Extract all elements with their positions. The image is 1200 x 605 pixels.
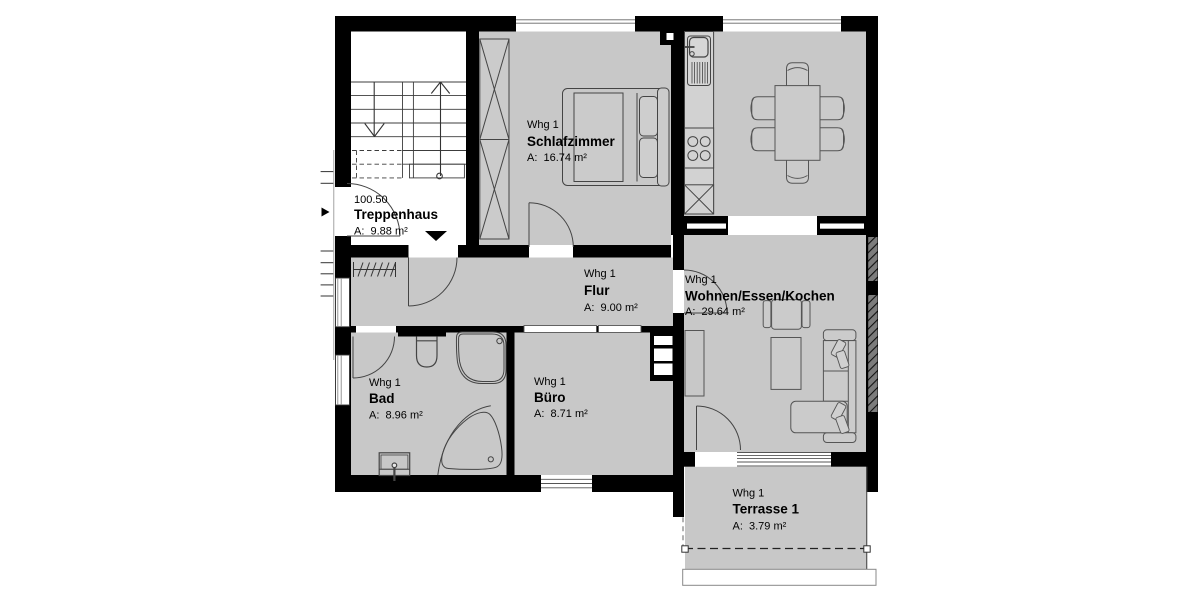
svg-text:Whg 1: Whg 1 <box>685 274 717 286</box>
svg-text:A: 3.79 m²: A: 3.79 m² <box>733 521 787 533</box>
svg-text:100.50: 100.50 <box>354 194 388 206</box>
svg-text:A: 9.00 m²: A: 9.00 m² <box>584 302 638 314</box>
svg-text:Bad: Bad <box>369 391 395 406</box>
svg-text:A: 8.96 m²: A: 8.96 m² <box>369 410 423 422</box>
svg-text:Whg 1: Whg 1 <box>584 268 616 280</box>
svg-text:A: 29.64 m²: A: 29.64 m² <box>685 306 745 318</box>
svg-text:Whg 1: Whg 1 <box>527 119 559 131</box>
svg-text:Whg 1: Whg 1 <box>534 376 566 388</box>
svg-text:Whg 1: Whg 1 <box>369 377 401 389</box>
svg-text:A: 16.74 m²: A: 16.74 m² <box>527 152 587 164</box>
svg-text:Whg 1: Whg 1 <box>733 488 765 500</box>
svg-text:Wohnen/Essen/Kochen: Wohnen/Essen/Kochen <box>685 289 835 304</box>
svg-text:Terrasse 1: Terrasse 1 <box>733 502 800 517</box>
svg-text:Büro: Büro <box>534 390 566 405</box>
svg-text:Treppenhaus: Treppenhaus <box>354 207 438 222</box>
svg-text:A: 9.88 m²: A: 9.88 m² <box>354 226 408 238</box>
svg-text:A: 8.71 m²: A: 8.71 m² <box>534 408 588 420</box>
svg-text:Flur: Flur <box>584 283 610 298</box>
svg-text:Schlafzimmer: Schlafzimmer <box>527 134 616 149</box>
